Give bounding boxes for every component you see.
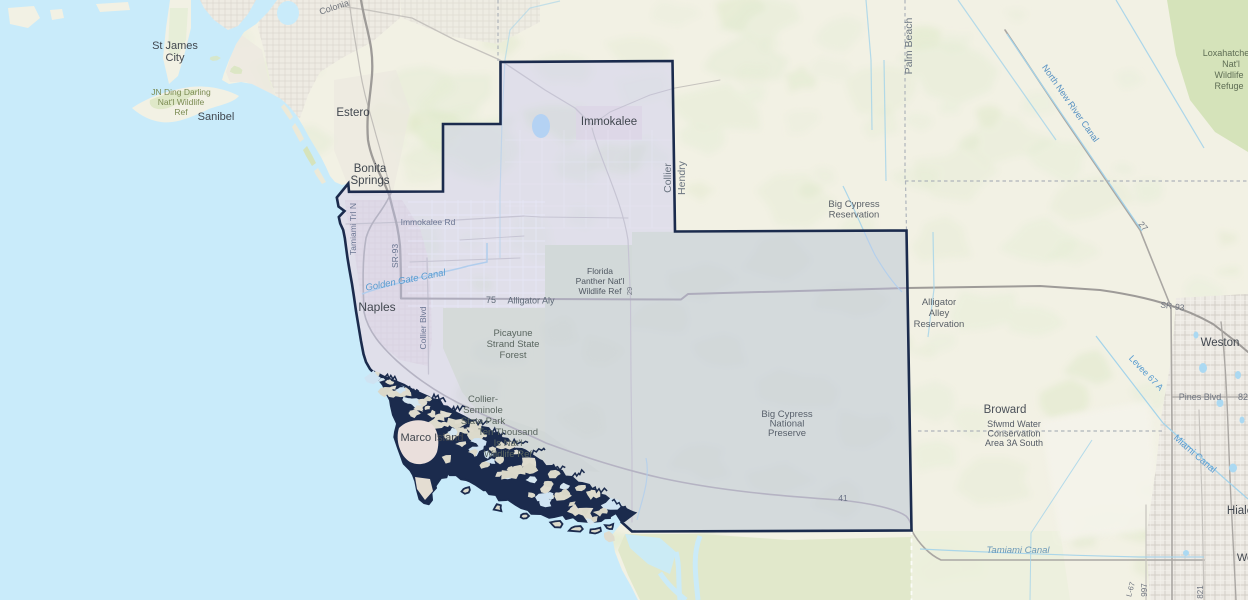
svg-text:SR-93: SR-93 xyxy=(390,244,400,268)
svg-text:Sanibel: Sanibel xyxy=(198,111,235,123)
svg-text:41: 41 xyxy=(838,493,848,503)
svg-text:State Park: State Park xyxy=(461,416,506,427)
svg-text:Alley: Alley xyxy=(929,308,950,319)
svg-text:Nat'l: Nat'l xyxy=(1222,59,1240,69)
svg-text:Area 3A South: Area 3A South xyxy=(985,438,1043,448)
svg-text:821: 821 xyxy=(1196,585,1205,599)
svg-text:Sfwmd Water: Sfwmd Water xyxy=(987,419,1041,429)
svg-text:Broward: Broward xyxy=(984,404,1027,416)
svg-text:City: City xyxy=(166,52,185,64)
svg-text:Panther Nat'l: Panther Nat'l xyxy=(576,276,625,286)
svg-text:Bonita: Bonita xyxy=(354,163,387,175)
svg-text:Pines Blvd: Pines Blvd xyxy=(1179,392,1222,402)
svg-text:Reservation: Reservation xyxy=(914,319,965,330)
svg-text:JN Ding Darling: JN Ding Darling xyxy=(151,87,211,97)
svg-text:Wildlife Ref: Wildlife Ref xyxy=(484,449,532,460)
svg-text:Palm Beach: Palm Beach xyxy=(903,18,915,75)
svg-text:Hendry: Hendry xyxy=(676,160,688,195)
svg-text:Conservation: Conservation xyxy=(987,429,1040,439)
svg-text:Wildlife Ref: Wildlife Ref xyxy=(579,286,623,296)
svg-text:Estero: Estero xyxy=(336,107,369,119)
svg-text:29: 29 xyxy=(625,287,634,295)
svg-text:Is Nat'l: Is Nat'l xyxy=(494,438,523,449)
svg-text:Immokalee Rd: Immokalee Rd xyxy=(401,217,456,227)
svg-text:Refuge: Refuge xyxy=(1214,81,1243,91)
svg-text:Alligator Aly: Alligator Aly xyxy=(507,296,555,306)
svg-text:Hiale: Hiale xyxy=(1227,505,1248,517)
svg-text:Springs: Springs xyxy=(351,175,390,187)
svg-text:We: We xyxy=(1237,552,1248,564)
svg-text:Collier-: Collier- xyxy=(468,394,498,405)
svg-text:Collier Blvd: Collier Blvd xyxy=(418,306,428,349)
svg-text:997: 997 xyxy=(1140,583,1149,597)
svg-text:Picayune: Picayune xyxy=(493,328,532,339)
svg-text:Wildlife: Wildlife xyxy=(1214,70,1243,80)
svg-text:Immokalee: Immokalee xyxy=(581,116,637,128)
svg-text:75: 75 xyxy=(486,295,496,305)
svg-text:Marco Island: Marco Island xyxy=(401,432,464,444)
svg-text:Collier: Collier xyxy=(662,163,674,193)
svg-text:Strand State: Strand State xyxy=(487,339,540,350)
svg-text:Naples: Naples xyxy=(358,300,395,314)
svg-text:Alligator: Alligator xyxy=(922,297,956,308)
svg-text:Reservation: Reservation xyxy=(829,210,880,221)
svg-text:Loxahatche: Loxahatche xyxy=(1203,48,1248,58)
svg-text:Weston: Weston xyxy=(1201,337,1240,349)
svg-text:Seminole: Seminole xyxy=(463,405,503,416)
svg-text:Nat'l Wildlife: Nat'l Wildlife xyxy=(158,97,205,107)
svg-text:Tamiami Trl N: Tamiami Trl N xyxy=(348,203,358,255)
svg-text:Tamiami Canal: Tamiami Canal xyxy=(986,545,1050,556)
svg-text:82: 82 xyxy=(1238,392,1248,402)
svg-text:St James: St James xyxy=(152,40,198,52)
svg-text:Forest: Forest xyxy=(500,350,527,361)
svg-text:Preserve: Preserve xyxy=(768,428,806,439)
svg-text:Florida: Florida xyxy=(587,266,613,276)
svg-text:Ref: Ref xyxy=(174,107,188,117)
svg-text:Ten Thousand: Ten Thousand xyxy=(478,427,538,438)
svg-text:Big Cypress: Big Cypress xyxy=(828,199,879,210)
